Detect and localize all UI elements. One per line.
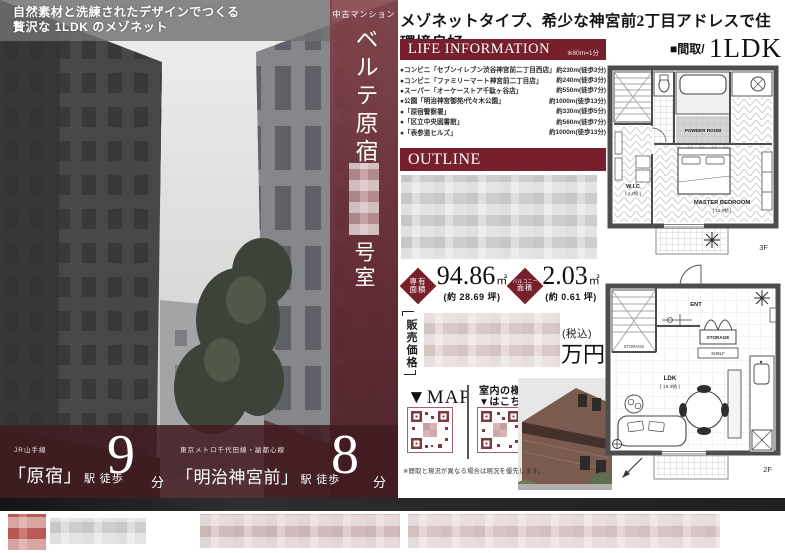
floorplan-2f: STORAGE STORAGE SHELF ENT bbox=[604, 264, 782, 504]
floor-label-3f: 3F bbox=[759, 243, 768, 252]
room-size-master-bedroom: [ 10.6帖 ] bbox=[713, 207, 732, 214]
qr-divider bbox=[467, 385, 469, 459]
rail-line-2: 東京メトロ千代田線・副都心線 bbox=[180, 444, 285, 454]
qr-code-map bbox=[407, 407, 453, 453]
rail-line-1: JR山手線 bbox=[14, 444, 46, 454]
walk-minutes-unit-2: 分 bbox=[373, 472, 386, 491]
outline-title: OUTLINE bbox=[408, 151, 481, 169]
footer-logo-redacted bbox=[8, 514, 46, 550]
life-info-item: ●「表参道ヒルズ」約1000m(徒歩13分) bbox=[400, 126, 606, 136]
room-label-shelf: SHELF bbox=[711, 351, 725, 356]
floorplan-header-label: ■間取/ bbox=[670, 42, 705, 56]
floorplan-disclaimer: ※間取と現況が異なる場合は現況を優先します。 bbox=[403, 466, 544, 475]
bracket-mark bbox=[402, 311, 414, 316]
station-name-2: 「明治神宮前」 bbox=[176, 463, 299, 488]
room-size-wic: [ 4.2帖 ] bbox=[625, 190, 640, 197]
life-information-header: LIFE INFORMATION ※80m=1分 bbox=[400, 39, 606, 60]
map-qr-label: ▼MAP bbox=[407, 387, 471, 409]
floorplan-header-type: 1LDK bbox=[709, 33, 782, 63]
walk-minutes-1: 9 bbox=[107, 427, 135, 483]
station-name-1: 「原宿」 bbox=[8, 462, 82, 488]
room-label-powder-room: POWDER ROOM bbox=[685, 128, 721, 133]
life-info-item: ●コンビニ「ファミリーマート神宮前二丁目店」約240m(徒歩3分) bbox=[400, 74, 606, 84]
outline-header: OUTLINE bbox=[400, 148, 606, 171]
room-label-ldk: LDK bbox=[664, 375, 677, 382]
outline-details-redacted bbox=[401, 175, 597, 259]
room-label-wic: W.I.C bbox=[626, 184, 640, 190]
floor-label-2f: 2F bbox=[763, 465, 772, 474]
room-label-master-bedroom: MASTER BEDROOM bbox=[694, 200, 751, 206]
bottom-black-strip bbox=[0, 498, 785, 511]
flyer-canvas: 自然素材と洗練されたデザインでつくる 贅沢な 1LDK のメゾネット 中古マンシ… bbox=[0, 0, 785, 553]
floorplan-header: ■間取/ 1LDK bbox=[640, 33, 782, 64]
plant-icon bbox=[704, 232, 720, 248]
life-info-item: ●「原宿警察署」約330m(徒歩5分) bbox=[400, 106, 606, 116]
property-type-label: 中古マンション bbox=[330, 9, 398, 20]
room-label-storage: STORAGE bbox=[707, 335, 730, 340]
plant-icon bbox=[754, 290, 770, 306]
life-info-list: ●コンビニ「セブンイレブン渋谷神宮前二丁目西店」約230m(徒歩3分) ●コンビ… bbox=[400, 64, 606, 137]
footer-text-redacted bbox=[50, 518, 146, 544]
station-access-band: JR山手線 「原宿」 駅 徒歩 9 分 東京メトロ千代田線・副都心線 「明治神宮… bbox=[0, 425, 398, 500]
qr-code-interior bbox=[477, 407, 523, 453]
walk-minutes-unit-1: 分 bbox=[151, 472, 164, 491]
footer-company-redacted bbox=[200, 514, 400, 548]
life-information-title: LIFE INFORMATION bbox=[408, 41, 550, 58]
tagline-line2: 贅沢な 1LDK のメゾネット bbox=[13, 20, 332, 35]
station-access-item-2: 「明治神宮前」 駅 徒歩 bbox=[176, 463, 340, 488]
tagline-line1: 自然素材と洗練されたデザインでつくる bbox=[13, 5, 332, 20]
bracket-mark bbox=[404, 370, 416, 375]
footer-contact-redacted bbox=[408, 514, 720, 548]
life-info-item: ●「区立中央図書館」約560m(徒歩7分) bbox=[400, 116, 606, 126]
life-information-note: ※80m=1分 bbox=[567, 47, 599, 57]
exclusive-area-value: 94.86㎡ (約 28.69 坪) bbox=[434, 263, 510, 303]
property-name-vertical: ベルテ原宿 bbox=[347, 27, 381, 167]
room-size-ldk: [ 15.4帖 ] bbox=[660, 383, 679, 390]
room-label-stair-storage: STORAGE bbox=[624, 344, 645, 349]
price-label: 販売価格 bbox=[402, 311, 417, 375]
life-info-item: ●スーパー「オーケーストア千駄ヶ谷店」約550m(徒歩7分) bbox=[400, 85, 606, 95]
tagline-overlay: 自然素材と洗練されたデザインでつくる 贅沢な 1LDK のメゾネット bbox=[0, 0, 332, 41]
floorplan-3f: POWDER ROOM W.I.C [ 4.2帖 ] MASTER BEDROO… bbox=[606, 64, 782, 260]
price-redacted bbox=[424, 313, 560, 367]
room-suffix-label: 号室 bbox=[349, 241, 379, 291]
room-number-redacted bbox=[349, 163, 379, 235]
balcony-area-value: 2.03㎡ (約 0.61 坪) bbox=[538, 263, 604, 303]
life-info-item: ●公園「明治神宮御苑/代々木公園」約1000m(徒歩13分) bbox=[400, 95, 606, 105]
room-label-ent: ENT bbox=[690, 302, 702, 308]
walk-minutes-2: 8 bbox=[331, 427, 359, 483]
life-info-item: ●コンビニ「セブンイレブン渋谷神宮前二丁目西店」約230m(徒歩3分) bbox=[400, 64, 606, 74]
exclusive-area-badge: 専有面積 bbox=[400, 268, 437, 305]
price-unit: 万円 bbox=[561, 337, 605, 369]
